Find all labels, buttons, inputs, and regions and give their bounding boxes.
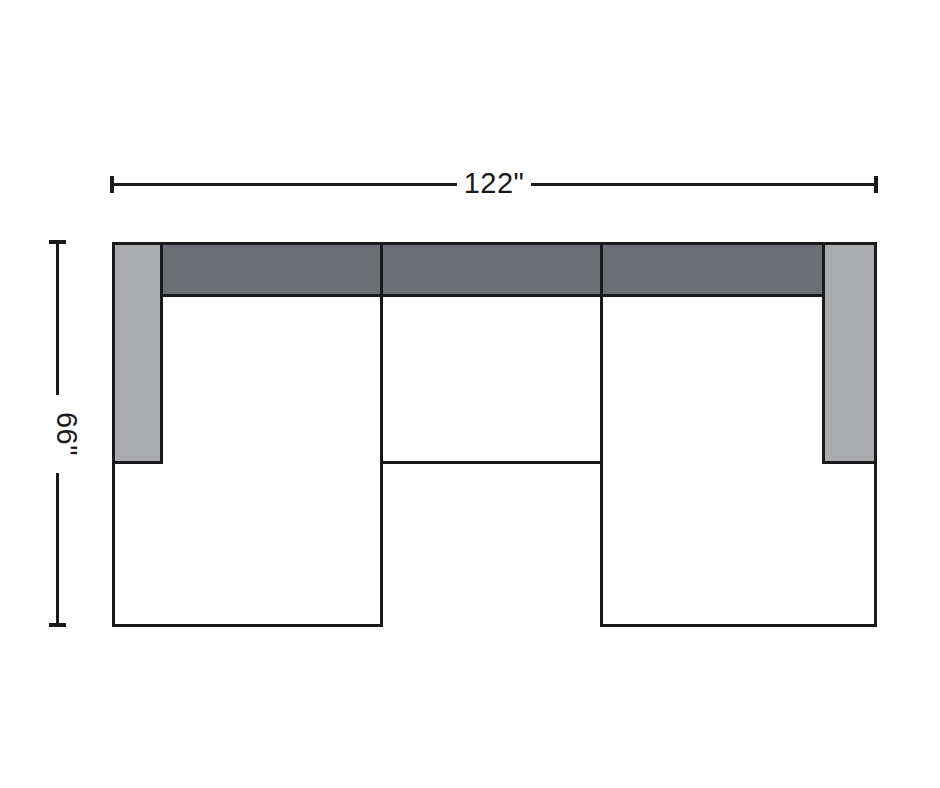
dimension-line-left-segment [114, 183, 457, 186]
middle-seat-section [380, 242, 603, 464]
height-dimension-label: 66" [52, 411, 81, 455]
right-seat-section [600, 242, 877, 627]
dimension-line-top-segment [56, 244, 59, 395]
dimension-tick-bottom [49, 623, 66, 627]
left-seat-section [112, 242, 383, 627]
width-dimension: 122" [110, 168, 878, 200]
sofa-floorplan-diagram: 122" 66" [0, 0, 940, 788]
dimension-line-bottom-segment [56, 473, 59, 624]
dimension-tick-right [874, 176, 878, 193]
height-dimension-label-slot: 66" [48, 395, 66, 473]
height-dimension: 66" [48, 240, 66, 627]
width-dimension-label: 122" [457, 169, 532, 198]
dimension-line-right-segment [531, 183, 874, 186]
